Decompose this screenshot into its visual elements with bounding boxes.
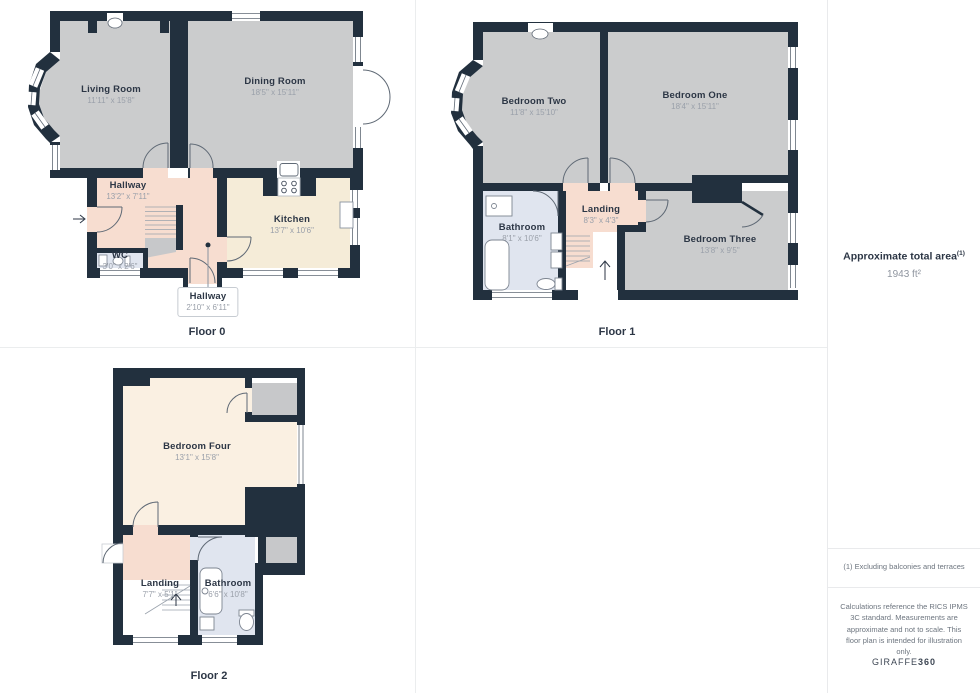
floor2-label: Floor 2: [191, 670, 228, 682]
room-label-bathroom-f1: Bathroom 8'1" x 10'6": [499, 222, 545, 243]
footnote-text: (1) Excluding balconies and terraces: [828, 562, 980, 571]
room-label-kitchen: Kitchen 13'7" x 10'6": [270, 214, 314, 235]
floor0-room-fills: [39, 21, 353, 284]
giraffe360-logo: GIRAFFE360: [828, 657, 980, 667]
disclaimer-text: Calculations reference the RICS IPMS 3C …: [828, 601, 980, 657]
floor2-plan: [102, 368, 305, 645]
room-label-bedroom-two: Bedroom Two 11'8" x 15'10": [502, 96, 567, 117]
floor1-plan: [451, 22, 798, 300]
floorplan-page: Living Room 11'11" x 15'8" Dining Room 1…: [0, 0, 980, 693]
info-sidebar: Approximate total area(1) 1943 ft² (1) E…: [827, 0, 980, 693]
total-area-block: Approximate total area(1) 1943 ft²: [828, 250, 980, 280]
room-label-landing-f1: Landing 8'3" x 4'3": [582, 204, 620, 225]
room-label-wc: WC 3'0" x 2'6": [103, 250, 138, 271]
entry-arrow: [73, 215, 85, 223]
room-label-landing-f2: Landing 7'7" x 5'1": [141, 578, 179, 599]
total-area-label: Approximate total area(1): [828, 250, 980, 263]
floor0-label: Floor 0: [189, 326, 226, 338]
total-area-footnote-marker: (1): [957, 250, 965, 257]
total-area-value: 1943 ft²: [828, 269, 980, 280]
floor1-label: Floor 1: [599, 326, 636, 338]
hallway-callout: Hallway 2'10" x 6'11": [177, 287, 238, 317]
room-label-dining-room: Dining Room 18'5" x 15'11": [244, 76, 305, 97]
room-label-bedroom-one: Bedroom One 18'4" x 15'11": [662, 90, 727, 111]
floor0-plan: [28, 11, 390, 290]
room-label-bedroom-four: Bedroom Four 13'1" x 15'8": [163, 441, 231, 462]
room-label-living-room: Living Room 11'11" x 15'8": [81, 84, 141, 105]
sidebar-divider-2: [828, 587, 980, 588]
room-label-hallway: Hallway 13'2" x 7'11": [106, 180, 149, 201]
room-label-bedroom-three: Bedroom Three 13'8" x 9'5": [684, 234, 757, 255]
room-label-bathroom-f2: Bathroom 6'6" x 10'8": [205, 578, 251, 599]
sidebar-divider-1: [828, 548, 980, 549]
